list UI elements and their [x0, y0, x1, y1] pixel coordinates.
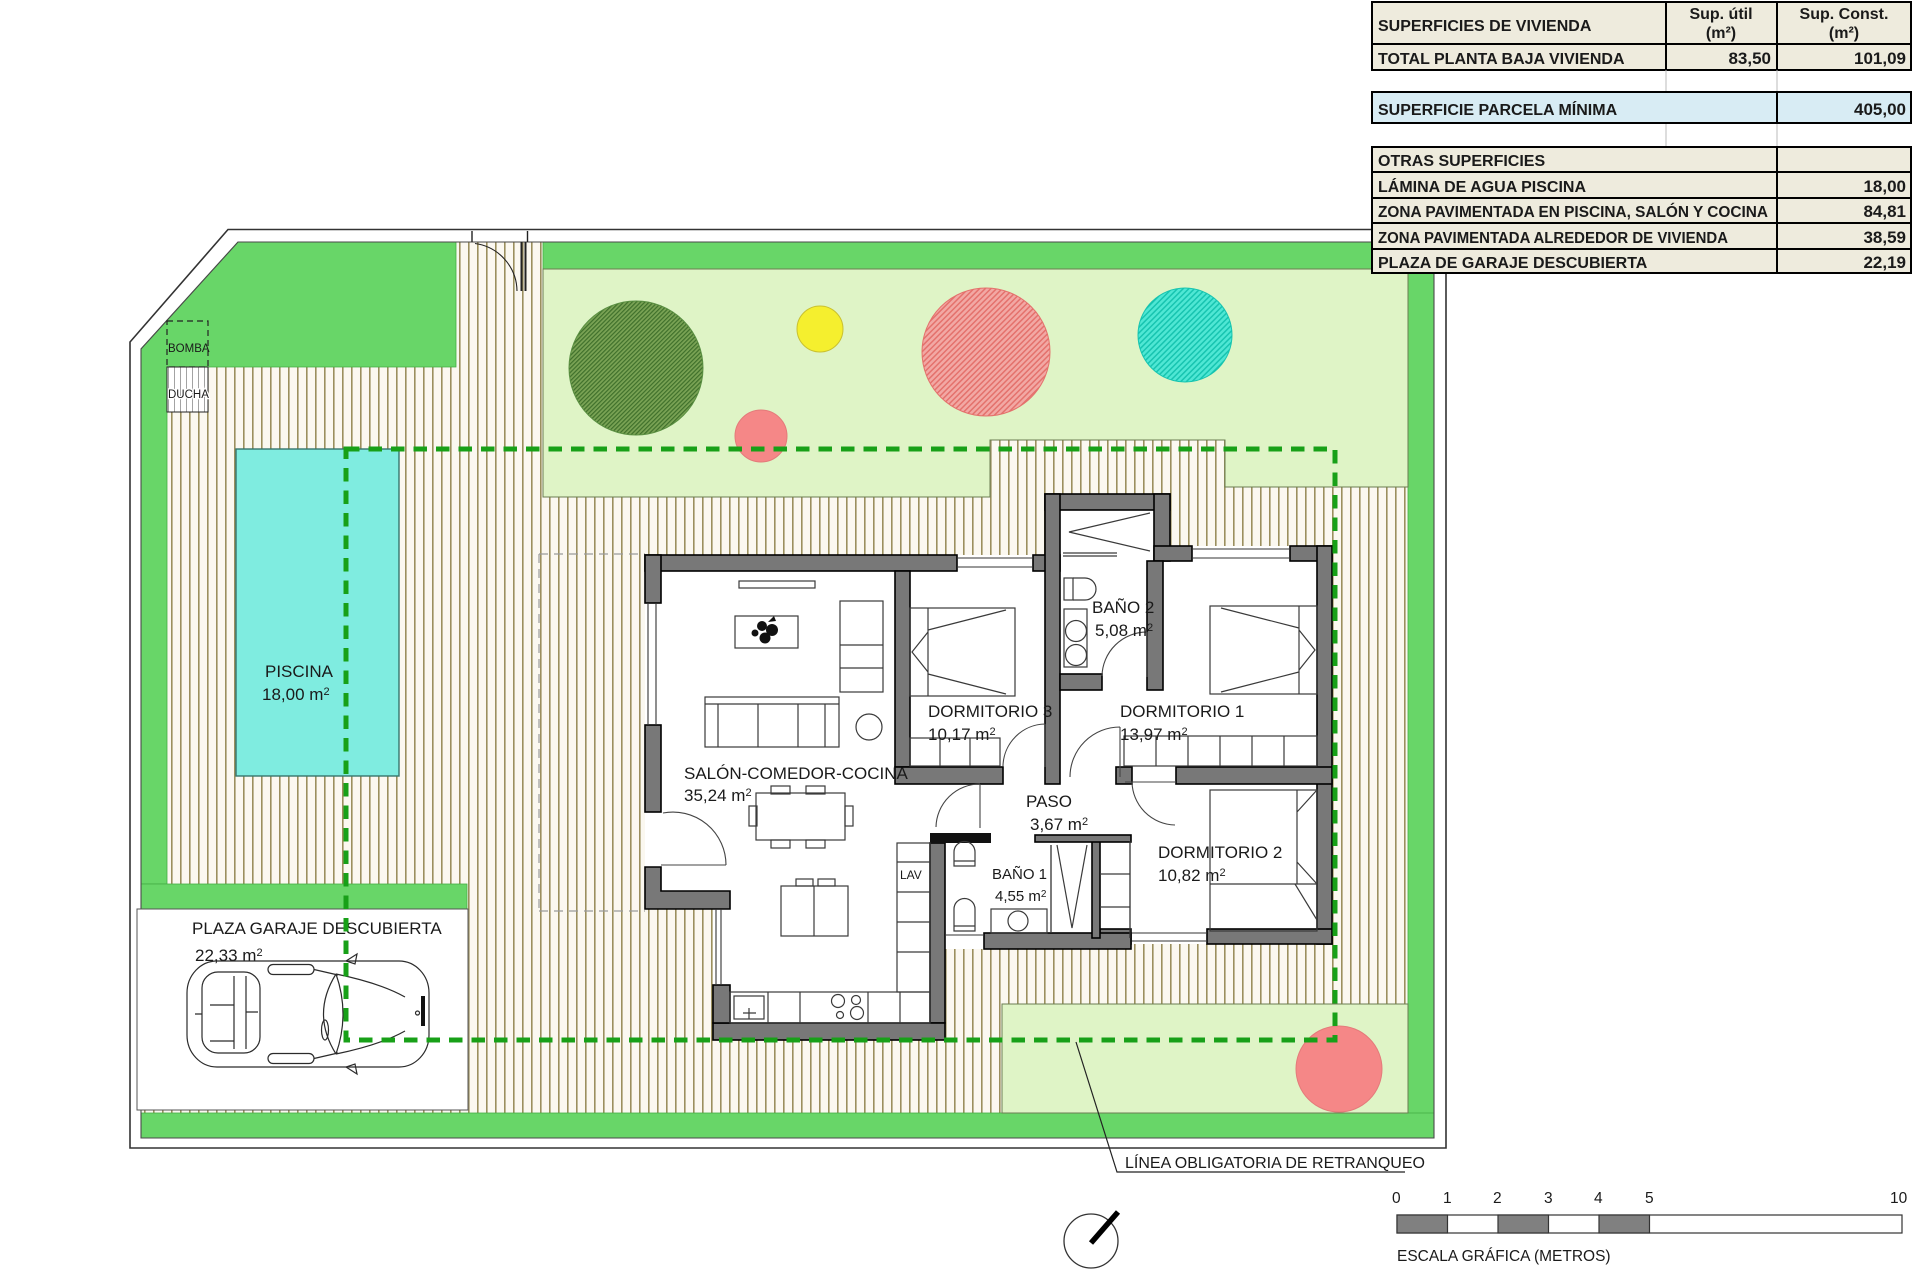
svg-text:2: 2 — [1493, 1190, 1502, 1207]
svg-text:ESCALA GRÁFICA (METROS): ESCALA GRÁFICA (METROS) — [1397, 1248, 1611, 1265]
svg-text:LÍNEA OBLIGATORIA DE RETRANQUE: LÍNEA OBLIGATORIA DE RETRANQUEO — [1125, 1153, 1425, 1172]
svg-text:Sup. Const.: Sup. Const. — [1800, 6, 1889, 23]
svg-text:22,33 m2: 22,33 m2 — [195, 946, 263, 965]
svg-text:18,00: 18,00 — [1863, 177, 1906, 196]
svg-text:LAV: LAV — [900, 868, 922, 882]
svg-text:38,59: 38,59 — [1863, 228, 1906, 247]
svg-text:10,82 m2: 10,82 m2 — [1158, 866, 1226, 885]
svg-text:PISCINA: PISCINA — [265, 662, 334, 681]
svg-text:PASO: PASO — [1026, 792, 1072, 811]
svg-text:ZONA PAVIMENTADA EN PISCINA, S: ZONA PAVIMENTADA EN PISCINA, SALÓN Y COC… — [1378, 202, 1768, 221]
svg-text:84,81: 84,81 — [1863, 202, 1906, 221]
svg-text:DUCHA: DUCHA — [168, 389, 209, 401]
svg-text:SALÓN-COMEDOR-COCINA: SALÓN-COMEDOR-COCINA — [684, 764, 909, 783]
svg-text:10,17 m2: 10,17 m2 — [928, 725, 996, 744]
svg-text:Sup. útil: Sup. útil — [1689, 6, 1752, 23]
svg-text:10: 10 — [1890, 1190, 1908, 1207]
svg-text:22,19: 22,19 — [1863, 253, 1906, 272]
svg-text:(m²): (m²) — [1829, 25, 1859, 42]
svg-text:BOMBA: BOMBA — [168, 343, 210, 355]
svg-text:ZONA PAVIMENTADA ALREDEDOR DE: ZONA PAVIMENTADA ALREDEDOR DE VIVIENDA — [1378, 230, 1728, 247]
svg-text:DORMITORIO 1: DORMITORIO 1 — [1120, 702, 1244, 721]
svg-text:SUPERFICIES DE VIVIENDA: SUPERFICIES DE VIVIENDA — [1378, 18, 1592, 35]
svg-text:405,00: 405,00 — [1854, 100, 1906, 119]
svg-text:3: 3 — [1544, 1190, 1553, 1207]
svg-text:PLAZA DE GARAJE DESCUBIERTA: PLAZA DE GARAJE DESCUBIERTA — [1378, 255, 1648, 272]
svg-text:13,97 m2: 13,97 m2 — [1120, 725, 1188, 744]
svg-text:3,67 m2: 3,67 m2 — [1030, 815, 1088, 834]
svg-text:TOTAL PLANTA BAJA VIVIENDA: TOTAL PLANTA BAJA VIVIENDA — [1378, 51, 1625, 68]
svg-text:0: 0 — [1392, 1190, 1401, 1207]
svg-text:(m²): (m²) — [1706, 25, 1736, 42]
svg-text:LÁMINA DE AGUA PISCINA: LÁMINA DE AGUA PISCINA — [1378, 177, 1586, 196]
svg-text:101,09: 101,09 — [1854, 49, 1906, 68]
svg-text:83,50: 83,50 — [1728, 49, 1771, 68]
svg-text:BAÑO 2: BAÑO 2 — [1092, 598, 1154, 617]
svg-text:35,24 m2: 35,24 m2 — [684, 786, 752, 805]
svg-text:5,08 m2: 5,08 m2 — [1095, 621, 1153, 640]
svg-text:OTRAS SUPERFICIES: OTRAS SUPERFICIES — [1378, 153, 1545, 170]
svg-text:BAÑO 1: BAÑO 1 — [992, 866, 1047, 883]
svg-text:5: 5 — [1645, 1190, 1654, 1207]
svg-text:DORMITORIO 2: DORMITORIO 2 — [1158, 843, 1282, 862]
svg-text:1: 1 — [1443, 1190, 1452, 1207]
svg-text:DORMITORIO 3: DORMITORIO 3 — [928, 702, 1052, 721]
svg-text:PLAZA GARAJE DESCUBIERTA: PLAZA GARAJE DESCUBIERTA — [192, 919, 442, 938]
svg-text:4: 4 — [1594, 1190, 1603, 1207]
svg-text:4,55 m2: 4,55 m2 — [995, 888, 1047, 905]
svg-text:18,00 m2: 18,00 m2 — [262, 685, 330, 704]
svg-text:SUPERFICIE PARCELA MÍNIMA: SUPERFICIE PARCELA MÍNIMA — [1378, 100, 1618, 119]
